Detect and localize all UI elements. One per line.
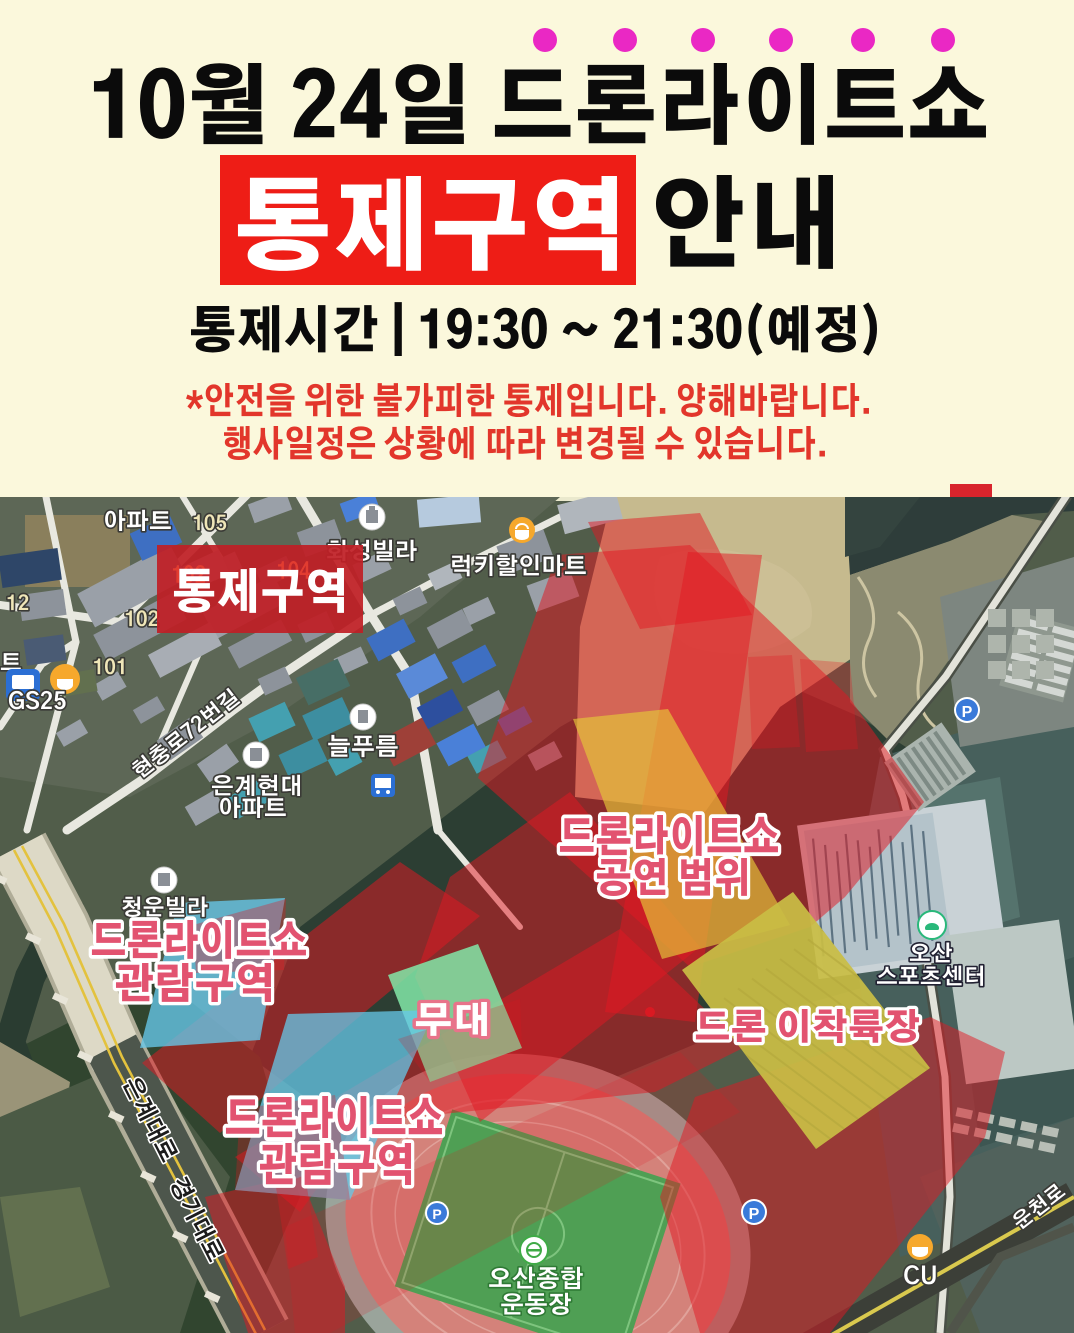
svg-text:P: P	[962, 704, 973, 721]
svg-text:P: P	[749, 1206, 760, 1223]
svg-text:P: P	[432, 1206, 441, 1222]
